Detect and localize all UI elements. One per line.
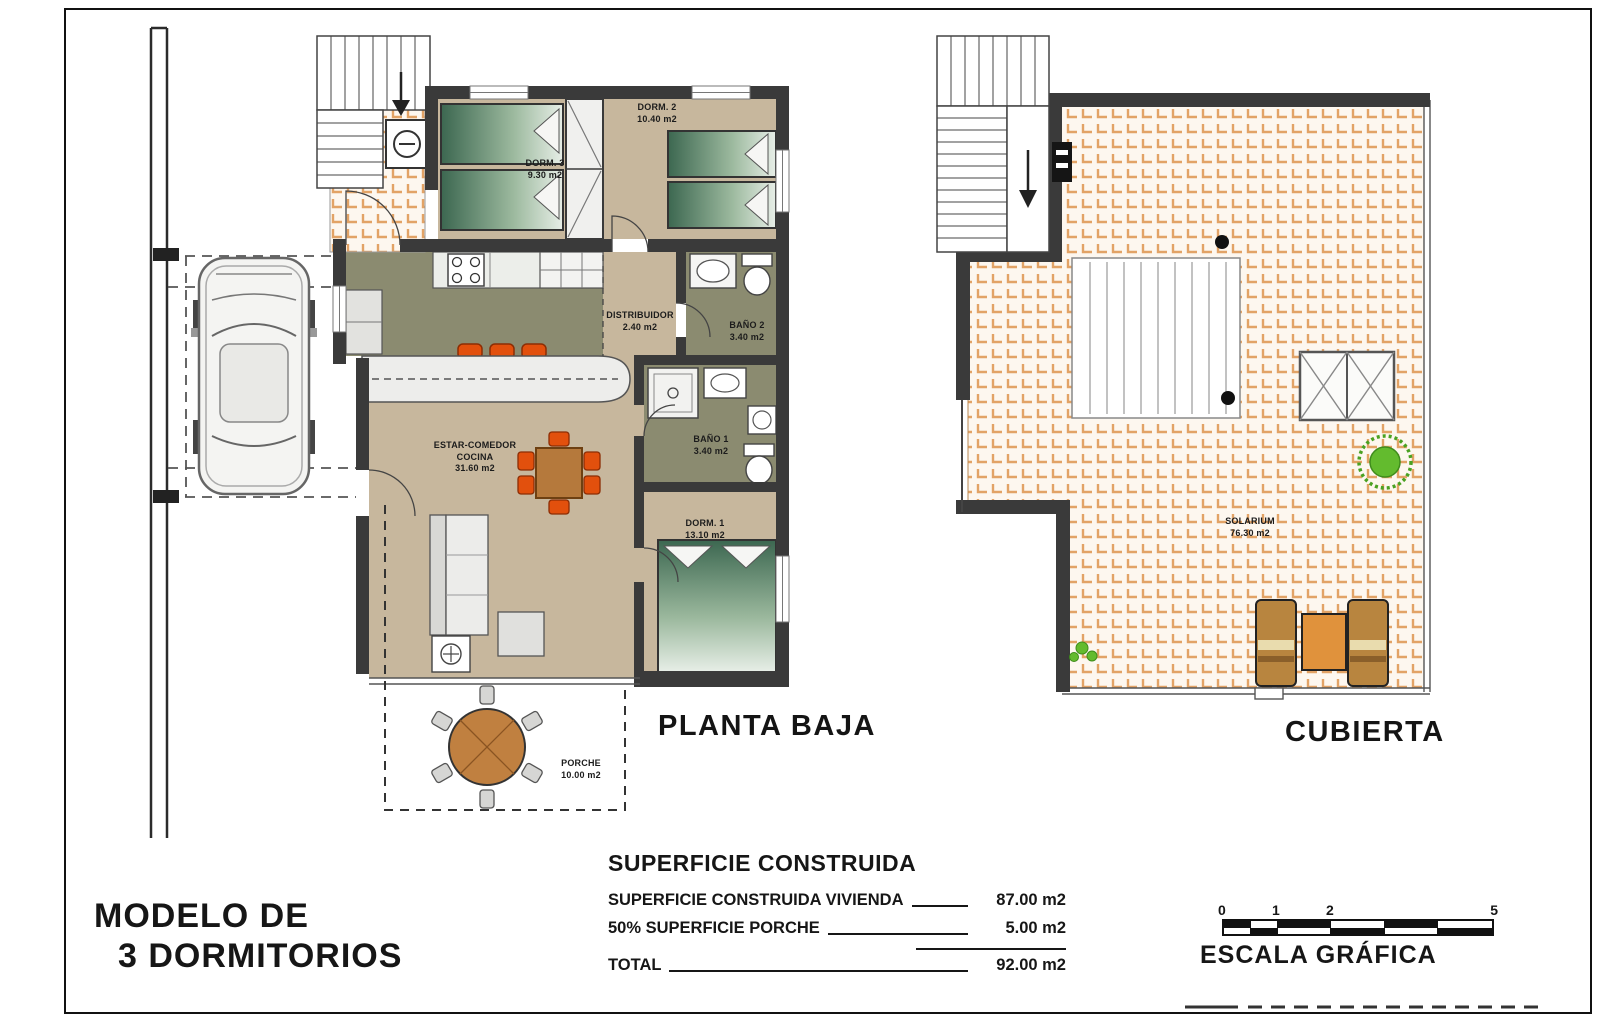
floorplan-drawing (0, 0, 1600, 1024)
cu-chimney (1052, 142, 1072, 182)
pb-washer-icon (386, 120, 428, 168)
cu-stairwell-void (1072, 258, 1240, 418)
boundary-lines (151, 28, 167, 838)
pb-wardrobe (566, 99, 603, 239)
cu-side-table (1302, 614, 1346, 670)
car-top-view (191, 258, 317, 494)
cu-exterior-stair (937, 36, 1049, 252)
cu-skylight (1300, 352, 1394, 420)
pb-glass-wall (369, 678, 640, 684)
